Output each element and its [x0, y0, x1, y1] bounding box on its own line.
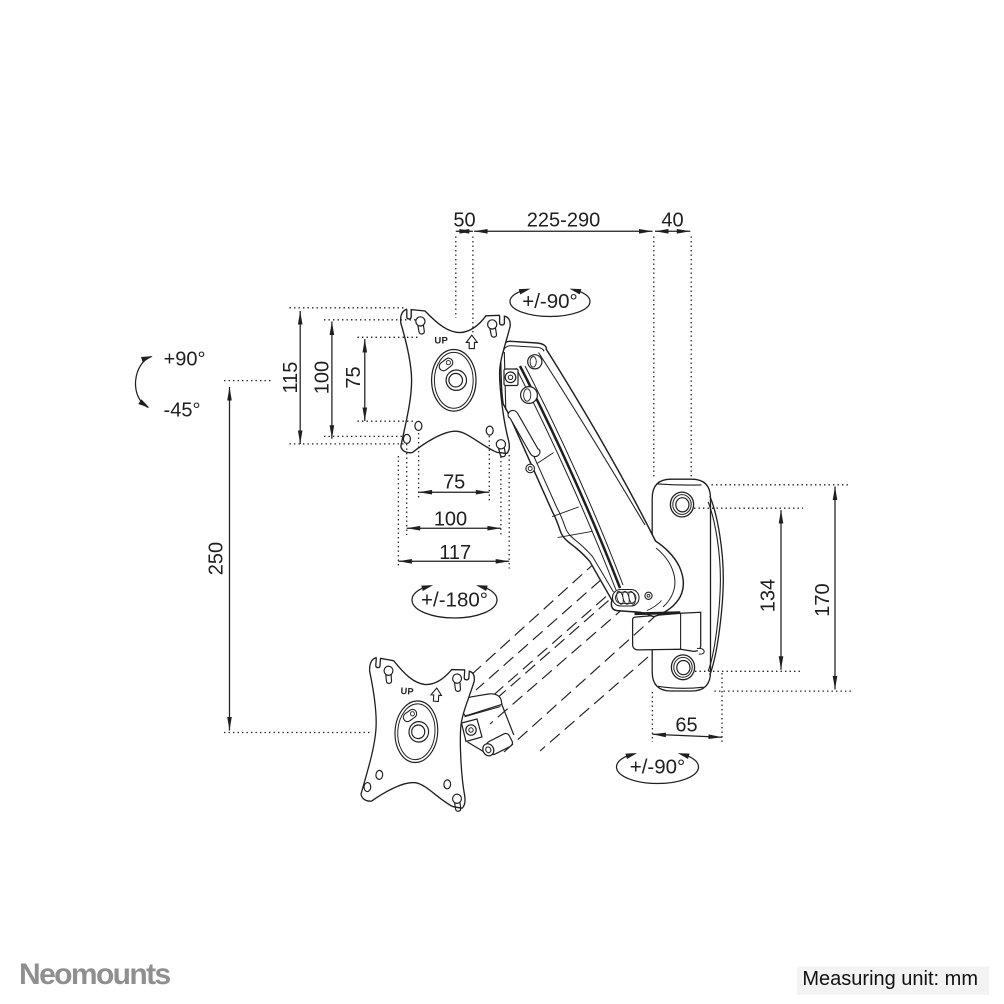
svg-text:+/-90°: +/-90° — [522, 290, 578, 313]
svg-text:170: 170 — [812, 583, 834, 616]
svg-text:117: 117 — [439, 542, 471, 564]
svg-text:Measuring unit: mm: Measuring unit: mm — [802, 968, 978, 990]
svg-text:-45°: -45° — [164, 400, 201, 422]
svg-text:100: 100 — [434, 509, 467, 531]
svg-text:+90°: +90° — [164, 349, 206, 371]
svg-text:115: 115 — [280, 362, 302, 394]
svg-text:100: 100 — [311, 361, 333, 394]
svg-text:+/-180°: +/-180° — [421, 589, 488, 612]
svg-text:250: 250 — [206, 542, 228, 575]
svg-text:40: 40 — [661, 210, 683, 232]
svg-text:Neomounts: Neomounts — [19, 958, 171, 991]
svg-text:+/-90°: +/-90° — [630, 756, 686, 779]
svg-text:75: 75 — [443, 472, 465, 494]
svg-text:50: 50 — [453, 210, 475, 232]
svg-text:75: 75 — [343, 366, 365, 388]
svg-text:225-290: 225-290 — [527, 210, 600, 232]
svg-text:134: 134 — [758, 579, 780, 612]
svg-text:65: 65 — [675, 715, 697, 737]
